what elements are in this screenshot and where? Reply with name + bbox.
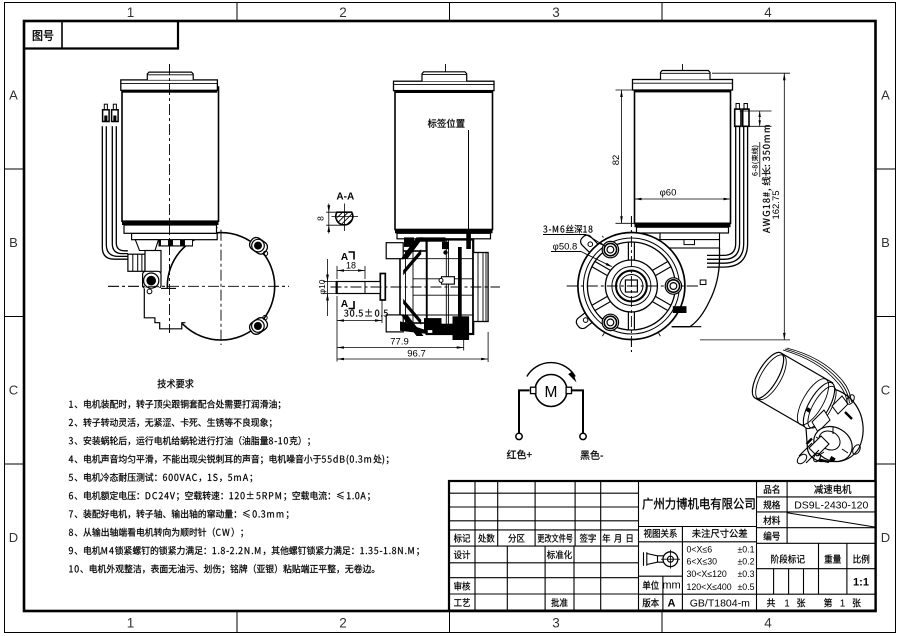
svg-text:4: 4	[764, 5, 772, 20]
svg-text:φ50.8: φ50.8	[553, 242, 578, 253]
svg-text:2: 2	[339, 5, 347, 20]
svg-text:A: A	[668, 597, 676, 609]
svg-text:C: C	[881, 383, 890, 398]
svg-text:1: 1	[127, 5, 135, 20]
svg-text:4: 4	[764, 616, 772, 631]
svg-text:φ10: φ10	[317, 279, 327, 294]
svg-text:6<X≤30: 6<X≤30	[687, 557, 718, 567]
svg-text:96.7: 96.7	[407, 349, 426, 360]
svg-text:A: A	[341, 252, 348, 263]
svg-text:±0.5: ±0.5	[737, 582, 754, 592]
svg-text:120<X≤400: 120<X≤400	[687, 582, 732, 592]
svg-text:2: 2	[339, 616, 347, 631]
svg-text:B: B	[9, 235, 18, 250]
svg-text:D: D	[9, 530, 18, 545]
svg-text:77.9: 77.9	[390, 337, 409, 348]
svg-text:1: 1	[784, 599, 790, 610]
svg-text:D: D	[881, 530, 890, 545]
svg-text:A-A: A-A	[336, 192, 354, 203]
svg-text:±0.3: ±0.3	[737, 569, 754, 579]
svg-text:B: B	[881, 235, 890, 250]
svg-text:A: A	[881, 88, 890, 103]
svg-text:1: 1	[840, 599, 846, 610]
svg-text:162.75: 162.75	[771, 190, 782, 219]
svg-text:1: 1	[127, 616, 135, 631]
svg-text:±0.2: ±0.2	[737, 557, 754, 567]
svg-text:±0.1: ±0.1	[737, 544, 754, 554]
svg-text:3: 3	[552, 5, 560, 20]
svg-text:mm: mm	[662, 580, 680, 592]
svg-text:3: 3	[552, 616, 560, 631]
svg-text:0<X≤6: 0<X≤6	[687, 544, 713, 554]
svg-text:82: 82	[611, 155, 622, 166]
svg-text:DS9L-2430-120: DS9L-2430-120	[794, 499, 868, 511]
svg-text:C: C	[9, 383, 18, 398]
svg-text:M: M	[545, 384, 558, 401]
svg-text:φ60: φ60	[660, 188, 677, 199]
svg-text:A: A	[9, 88, 18, 103]
svg-text:A: A	[341, 299, 348, 310]
svg-text:GB/T1804-m: GB/T1804-m	[690, 598, 750, 610]
svg-text:8: 8	[316, 216, 326, 221]
svg-text:1:1: 1:1	[853, 576, 869, 588]
svg-text:30<X≤120: 30<X≤120	[687, 569, 727, 579]
